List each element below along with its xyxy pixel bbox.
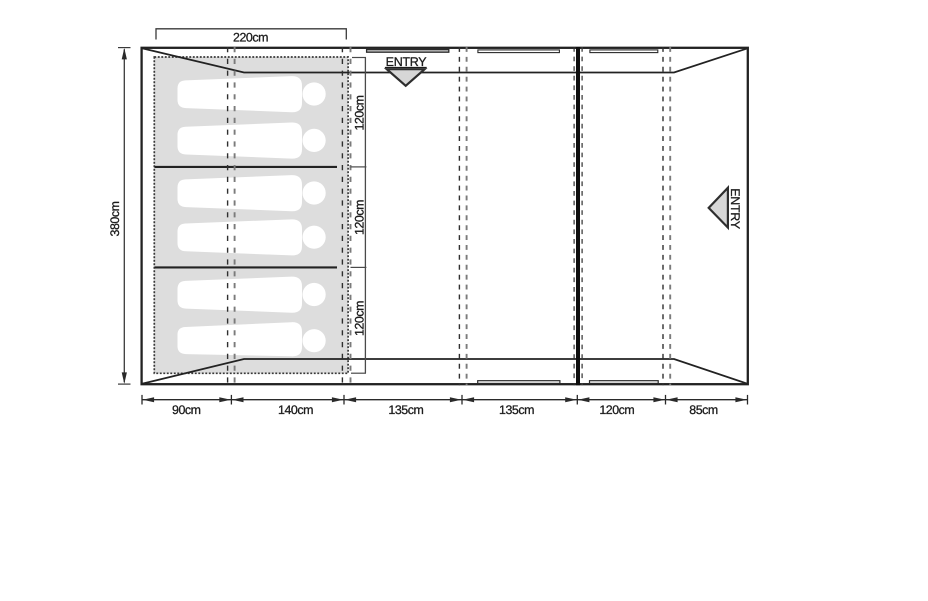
svg-text:135cm: 135cm <box>499 403 534 417</box>
svg-text:ENTRY: ENTRY <box>728 188 742 230</box>
svg-text:85cm: 85cm <box>689 403 718 417</box>
svg-text:120cm: 120cm <box>599 403 634 417</box>
svg-text:120cm: 120cm <box>352 200 366 235</box>
svg-text:220cm: 220cm <box>233 31 268 45</box>
svg-text:120cm: 120cm <box>352 301 366 336</box>
svg-text:ENTRY: ENTRY <box>386 55 428 69</box>
svg-text:90cm: 90cm <box>172 403 201 417</box>
svg-text:120cm: 120cm <box>352 95 366 130</box>
svg-text:135cm: 135cm <box>388 403 423 417</box>
svg-text:380cm: 380cm <box>108 201 122 236</box>
svg-text:140cm: 140cm <box>278 403 313 417</box>
